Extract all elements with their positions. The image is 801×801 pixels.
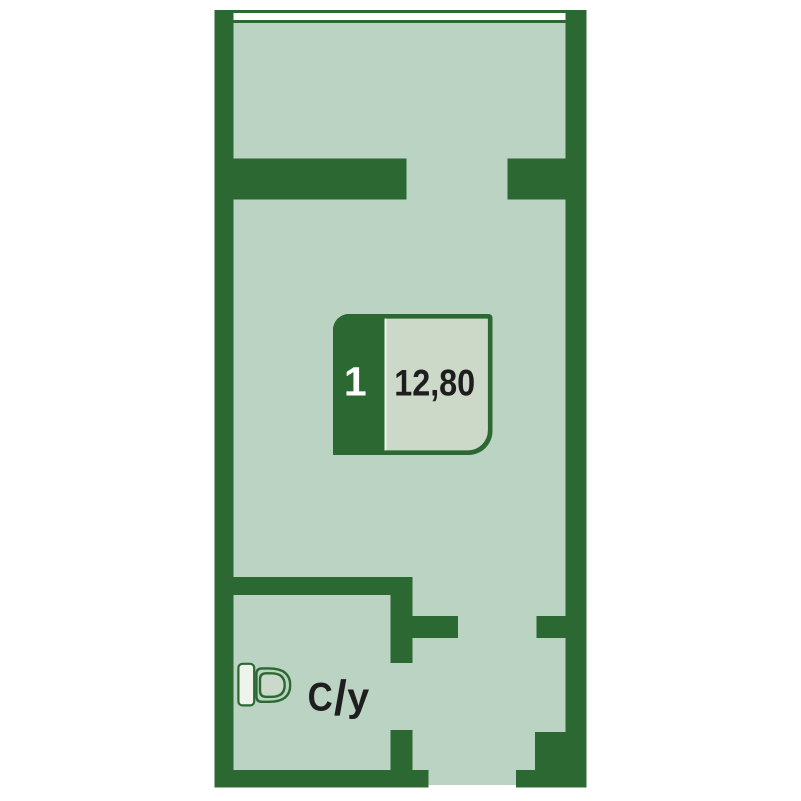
svg-text:у: у: [347, 676, 369, 720]
svg-text:12,80: 12,80: [394, 363, 475, 403]
svg-text:1: 1: [344, 359, 367, 405]
svg-text:С: С: [308, 674, 333, 719]
